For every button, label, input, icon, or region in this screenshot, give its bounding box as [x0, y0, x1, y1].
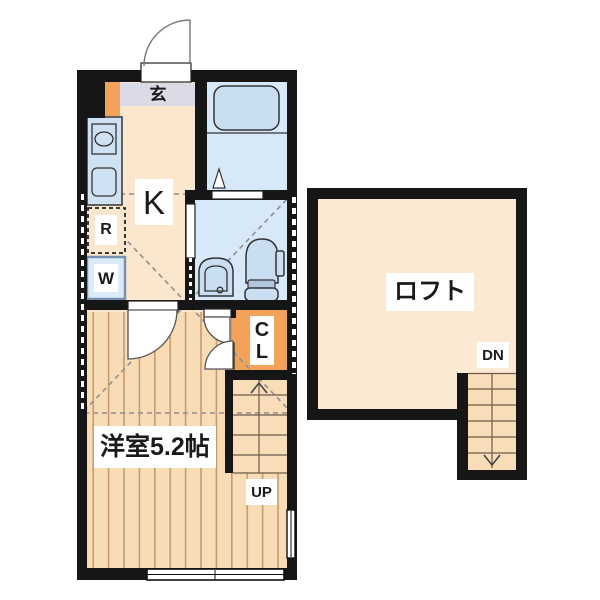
- genkan-label: 玄: [120, 84, 196, 105]
- bathroom-door-opening: [212, 191, 263, 199]
- stairs-up-floor: [233, 380, 287, 473]
- kitchen-counter: [87, 117, 122, 205]
- loft-label: ロフト: [386, 273, 474, 311]
- bathtub-icon: [214, 86, 279, 130]
- stairs-down-label: DN: [477, 342, 509, 368]
- floor-plan-canvas: 玄 K R W C L 洋室5.2帖 UP ロフト DN: [0, 0, 600, 600]
- western-room-label: 洋室5.2帖: [94, 426, 216, 468]
- closet-door-top-panel: [204, 309, 231, 317]
- entry-door-arc: [144, 20, 190, 66]
- floor-plan-drawing: [0, 0, 600, 600]
- kitchen-label: K: [135, 179, 173, 225]
- entry-side-block: [104, 80, 120, 116]
- refrigerator-label: R: [95, 215, 117, 245]
- toilet-icon: [246, 239, 278, 283]
- entry-door-opening: [141, 63, 191, 82]
- toilet-door: [186, 204, 195, 258]
- bottom-window: [147, 569, 284, 580]
- stairs-up-label: UP: [246, 479, 277, 505]
- right-window: [287, 510, 295, 558]
- closet-label: C L: [250, 316, 274, 365]
- closet-label-line2: L: [256, 342, 268, 362]
- closet-label-line1: C: [255, 320, 269, 340]
- wash-basin-icon: [199, 258, 233, 296]
- washer-label: W: [94, 264, 118, 292]
